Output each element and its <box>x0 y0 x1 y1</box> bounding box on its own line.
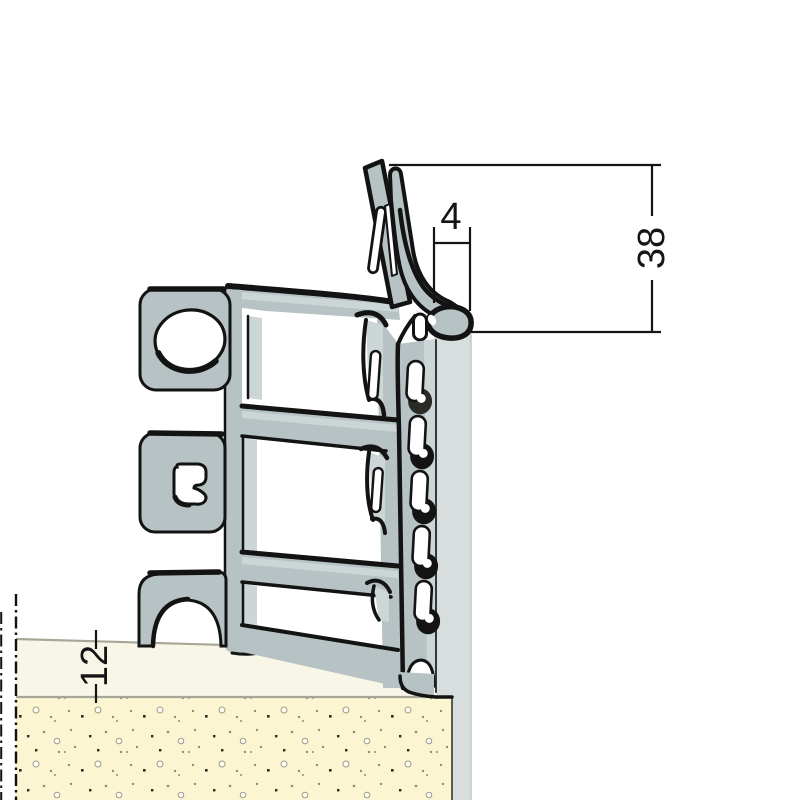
mounting-tab-middle <box>140 433 225 532</box>
dim-bead-gap-label: 4 <box>440 196 461 238</box>
base-coat-layer <box>16 697 452 800</box>
bead <box>426 307 471 338</box>
mounting-tabs <box>139 289 230 646</box>
profile-cross-section-drawing: 4 38 12 <box>0 0 800 800</box>
technical-drawing: 4 38 12 <box>0 0 800 800</box>
dim-flange-height-label: 38 <box>631 227 673 269</box>
dim-render-thickness-label: 12 <box>74 645 116 687</box>
mounting-tab-top <box>140 289 230 390</box>
tab-keyhole <box>174 464 206 504</box>
